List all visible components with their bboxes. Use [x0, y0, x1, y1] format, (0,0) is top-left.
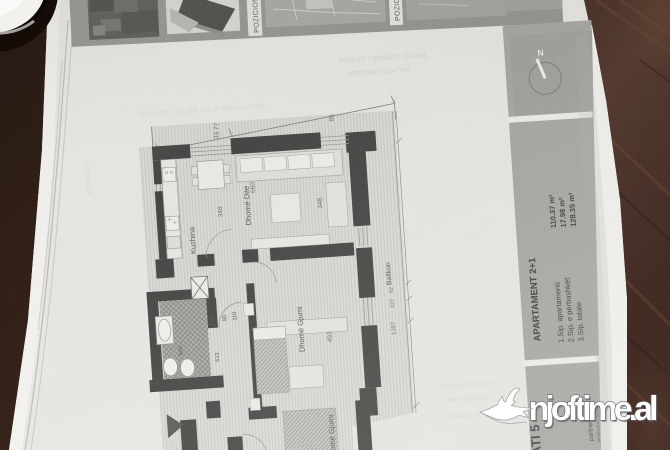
svg-text:njoftime.al: njoftime.al: [529, 390, 659, 428]
